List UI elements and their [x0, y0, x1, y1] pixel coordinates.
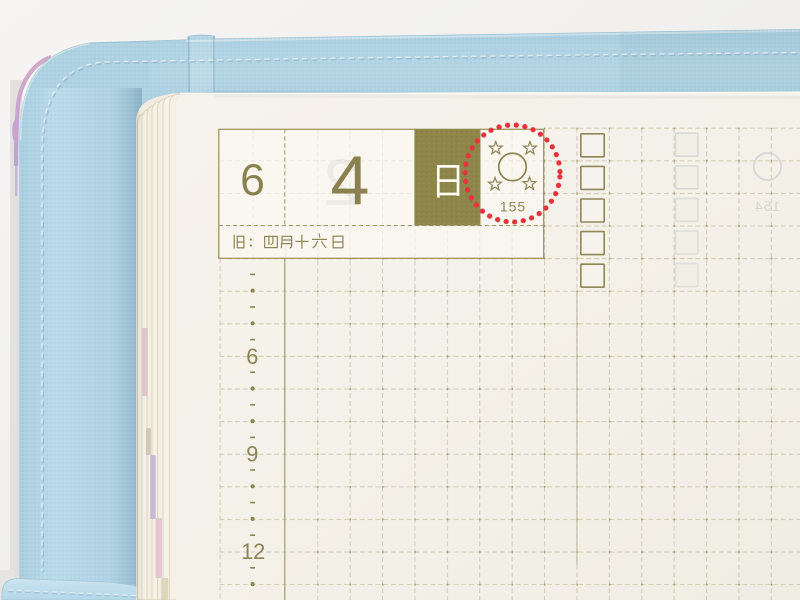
- svg-text:4: 4: [331, 142, 370, 220]
- svg-text:6: 6: [240, 156, 265, 205]
- svg-text:6: 6: [246, 344, 258, 369]
- svg-text:155: 155: [500, 198, 526, 214]
- svg-text:9: 9: [246, 442, 258, 467]
- svg-text:12: 12: [241, 539, 265, 564]
